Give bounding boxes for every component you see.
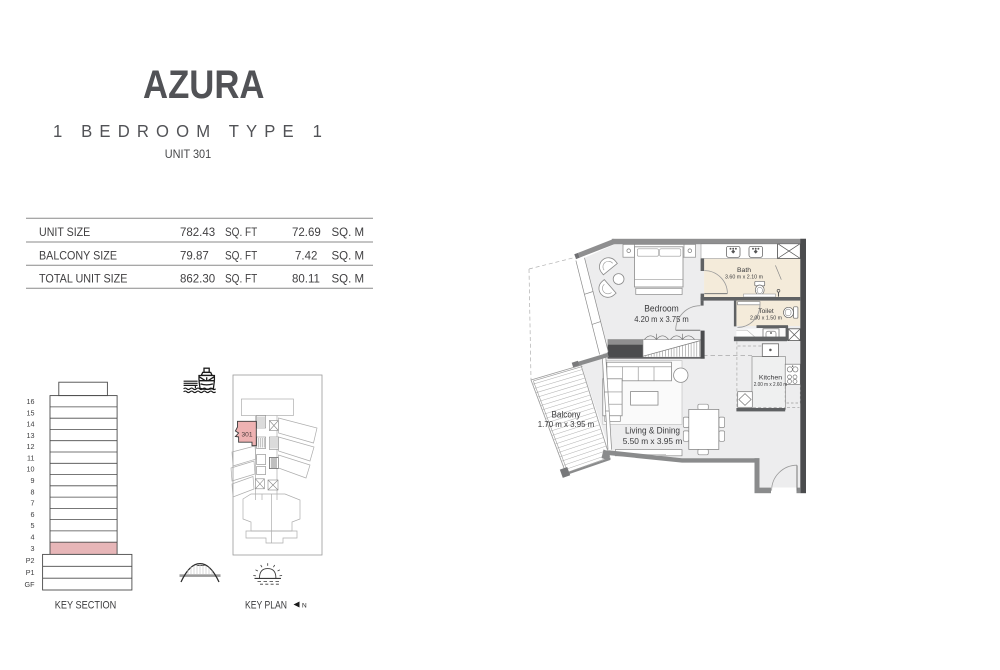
svg-text:SQ. M: SQ. M <box>332 273 365 285</box>
svg-text:SQ. M: SQ. M <box>332 251 365 263</box>
svg-text:KEY SECTION: KEY SECTION <box>55 599 117 611</box>
svg-text:72.69: 72.69 <box>292 227 321 239</box>
svg-text:1.70 m x 3.95 m: 1.70 m x 3.95 m <box>538 419 595 429</box>
svg-text:14: 14 <box>27 420 35 429</box>
svg-text:BALCONY SIZE: BALCONY SIZE <box>39 251 117 263</box>
svg-text:Bath: Bath <box>737 267 751 274</box>
svg-text:11: 11 <box>27 453 34 462</box>
svg-text:KEY PLAN: KEY PLAN <box>245 599 287 611</box>
svg-text:16: 16 <box>27 397 35 406</box>
svg-text:4.20 m x 3.75 m: 4.20 m x 3.75 m <box>634 314 689 324</box>
svg-text:782.43: 782.43 <box>180 227 215 239</box>
svg-text:1 BEDROOM TYPE 1: 1 BEDROOM TYPE 1 <box>53 121 329 141</box>
svg-text:80.11: 80.11 <box>292 273 320 285</box>
svg-text:Kitchen: Kitchen <box>759 375 782 382</box>
svg-text:2.00 x 1.50 m: 2.00 x 1.50 m <box>750 315 783 321</box>
svg-text:9: 9 <box>31 476 35 485</box>
svg-text:13: 13 <box>27 431 35 440</box>
svg-text:N: N <box>302 602 307 609</box>
svg-text:TOTAL UNIT SIZE: TOTAL UNIT SIZE <box>39 273 128 285</box>
svg-text:GF: GF <box>25 580 36 589</box>
svg-text:P2: P2 <box>26 556 35 565</box>
svg-text:3.60 m x 2.10 m: 3.60 m x 2.10 m <box>725 274 764 280</box>
svg-text:Bedroom: Bedroom <box>644 304 679 314</box>
svg-text:P1: P1 <box>26 568 35 577</box>
svg-text:5.50 m x 3.95 m: 5.50 m x 3.95 m <box>623 436 683 446</box>
svg-text:7.42: 7.42 <box>295 251 317 263</box>
svg-text:SQ. FT: SQ. FT <box>225 227 257 239</box>
svg-text:SQ. FT: SQ. FT <box>225 251 257 263</box>
svg-text:301: 301 <box>241 431 252 438</box>
svg-text:15: 15 <box>27 408 35 417</box>
svg-text:5: 5 <box>31 521 35 530</box>
svg-text:Toilet: Toilet <box>758 308 774 315</box>
svg-text:SQ. FT: SQ. FT <box>225 273 257 285</box>
svg-text:10: 10 <box>27 465 35 474</box>
svg-text:UNIT SIZE: UNIT SIZE <box>39 227 91 239</box>
svg-text:Living & Dining: Living & Dining <box>625 425 680 435</box>
svg-text:AZURA: AZURA <box>143 63 265 107</box>
svg-text:4: 4 <box>31 532 35 541</box>
svg-text:2.00 m x 2.60 m: 2.00 m x 2.60 m <box>754 382 788 388</box>
svg-text:8: 8 <box>31 487 35 496</box>
svg-text:862.30: 862.30 <box>180 273 215 285</box>
svg-text:79.87: 79.87 <box>180 251 209 263</box>
svg-text:3: 3 <box>31 544 35 553</box>
svg-text:UNIT 301: UNIT 301 <box>165 147 212 161</box>
svg-text:6: 6 <box>31 510 35 519</box>
svg-text:7: 7 <box>31 499 35 508</box>
svg-text:12: 12 <box>27 442 35 451</box>
svg-text:SQ. M: SQ. M <box>332 227 365 239</box>
